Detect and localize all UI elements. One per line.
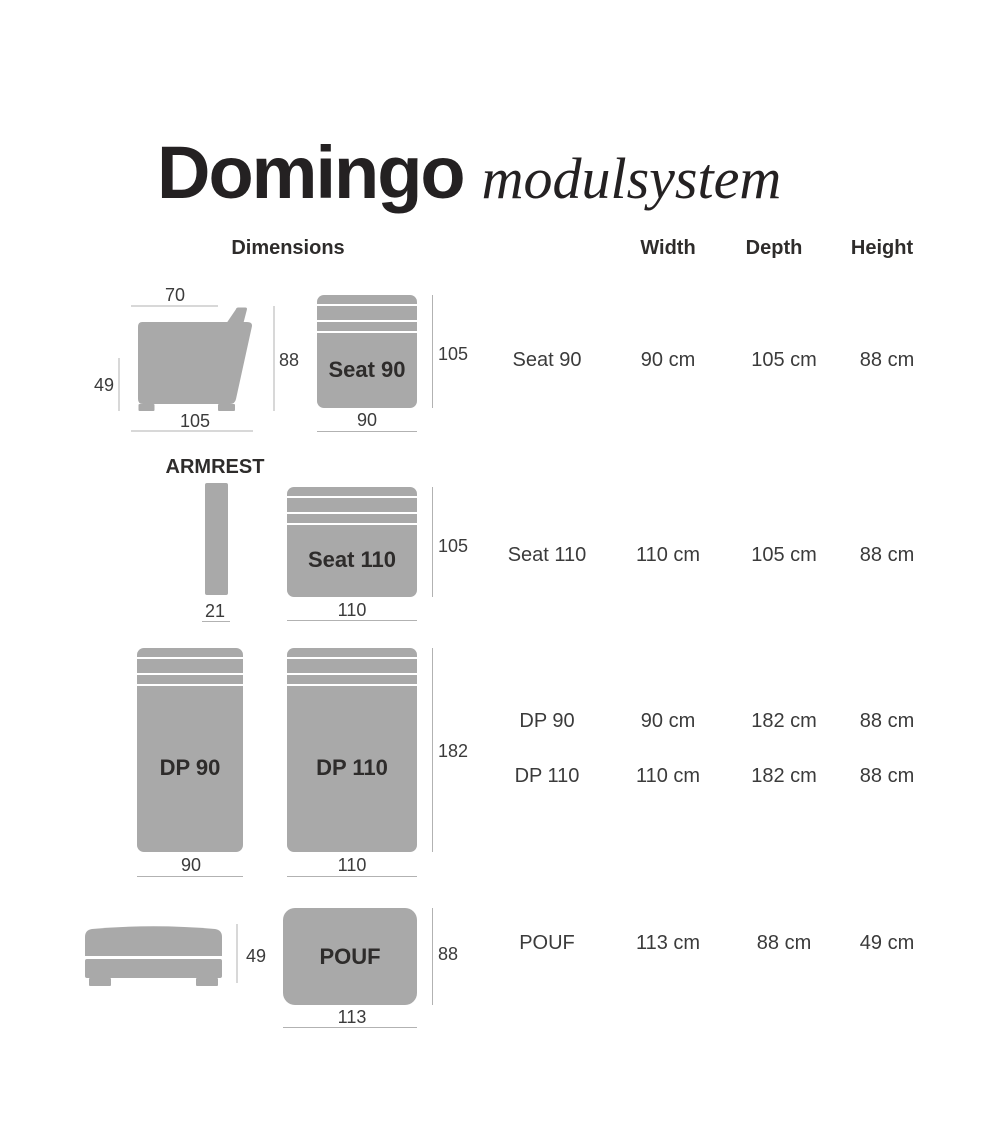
- armrest-top-view: [205, 483, 228, 595]
- seat90-side-foot-right: [218, 404, 235, 411]
- dim-dp110-width: 110: [319, 855, 385, 876]
- seat90-side-foot-left: [139, 404, 155, 411]
- seat110-top-view: Seat 110: [287, 487, 417, 597]
- row-height: 88 cm: [827, 765, 947, 788]
- seat90-side-view-diagram: 70 49 88 105: [85, 288, 300, 440]
- row-name: Seat 90: [487, 349, 607, 372]
- dim-line-pouf-width: [283, 1027, 417, 1028]
- row-depth: 182 cm: [724, 765, 844, 788]
- row-name: DP 90: [487, 710, 607, 733]
- row-depth: 182 cm: [724, 710, 844, 733]
- dim-seat90-top-depth: 105: [438, 344, 468, 365]
- row-width: 110 cm: [608, 765, 728, 788]
- dim-pouf-depth: 88: [438, 944, 458, 965]
- row-height: 88 cm: [827, 710, 947, 733]
- dp110-top-view: DP 110: [287, 648, 417, 852]
- column-header-dimensions: Dimensions: [208, 237, 368, 260]
- page-title: Domingo modulsystem: [157, 136, 781, 210]
- pouf-side-base-shape: [85, 959, 222, 978]
- cushion-seam: [287, 657, 417, 659]
- cushion-seam: [137, 657, 243, 659]
- cushion-seam: [317, 304, 417, 306]
- dim-dp90-width: 90: [158, 855, 224, 876]
- row-width: 113 cm: [608, 932, 728, 955]
- row-width: 90 cm: [608, 349, 728, 372]
- dim-seat90-side-depth: 105: [180, 411, 210, 431]
- column-header-height: Height: [822, 237, 942, 260]
- seat90-top-view: Seat 90: [317, 295, 417, 408]
- row-width: 90 cm: [608, 710, 728, 733]
- pouf-side-foot-right: [196, 978, 218, 986]
- dim-seat90-top-width: 90: [334, 410, 400, 431]
- pouf-side-view-diagram: 49: [83, 920, 278, 992]
- cushion-seam: [287, 512, 417, 514]
- row-height: 88 cm: [827, 544, 947, 567]
- pouf-top-view: POUF: [283, 908, 417, 1005]
- cushion-seam: [287, 673, 417, 675]
- dim-seat110-depth: 105: [438, 536, 468, 557]
- dim-dp-depth: 182: [438, 741, 468, 762]
- seat110-label: Seat 110: [287, 523, 417, 597]
- column-header-width: Width: [608, 237, 728, 260]
- dim-seat90-top-width: 70: [165, 285, 185, 305]
- dim-line-dp110-width: [287, 876, 417, 877]
- row-depth: 105 cm: [724, 544, 844, 567]
- dim-seat110-width: 110: [319, 600, 385, 621]
- cushion-seam: [287, 496, 417, 498]
- row-depth: 88 cm: [724, 932, 844, 955]
- row-height: 88 cm: [827, 349, 947, 372]
- dim-armrest-width: 21: [182, 601, 248, 622]
- armrest-label: ARMREST: [145, 456, 285, 479]
- dim-line-pouf-depth: [432, 908, 433, 1005]
- dim-line-seat110-depth: [432, 487, 433, 597]
- dim-line-seat90-top-width: [317, 431, 417, 432]
- dim-seat90-seat-height: 49: [94, 375, 114, 395]
- cushion-seam: [317, 320, 417, 322]
- dim-seat90-height: 88: [279, 350, 299, 370]
- dp90-top-view: DP 90: [137, 648, 243, 852]
- row-width: 110 cm: [608, 544, 728, 567]
- dim-line-dp-depth: [432, 648, 433, 852]
- dp90-label: DP 90: [137, 684, 243, 852]
- seat90-side-body-shape: [138, 322, 252, 404]
- dp110-label: DP 110: [287, 684, 417, 852]
- seat90-label: Seat 90: [317, 331, 417, 408]
- spec-sheet: Domingo modulsystem Dimensions Width Dep…: [0, 0, 1000, 1125]
- row-name: Seat 110: [487, 544, 607, 567]
- dim-pouf-width: 113: [319, 1007, 385, 1028]
- seat90-side-backrest-shape: [227, 308, 247, 323]
- row-name: POUF: [487, 932, 607, 955]
- column-header-depth: Depth: [714, 237, 834, 260]
- dim-line-armrest-width: [202, 621, 230, 622]
- row-name: DP 110: [487, 765, 607, 788]
- dim-line-dp90-width: [137, 876, 243, 877]
- row-height: 49 cm: [827, 932, 947, 955]
- brand-name: Domingo: [157, 136, 464, 210]
- pouf-side-cushion-shape: [85, 926, 222, 956]
- dim-pouf-height: 49: [246, 946, 266, 966]
- pouf-side-foot-left: [89, 978, 111, 986]
- row-depth: 105 cm: [724, 349, 844, 372]
- brand-subtitle: modulsystem: [482, 150, 782, 208]
- cushion-seam: [137, 673, 243, 675]
- dim-line-seat110-width: [287, 620, 417, 621]
- dim-line-seat90-top-depth: [432, 295, 433, 408]
- pouf-label: POUF: [283, 908, 417, 1005]
